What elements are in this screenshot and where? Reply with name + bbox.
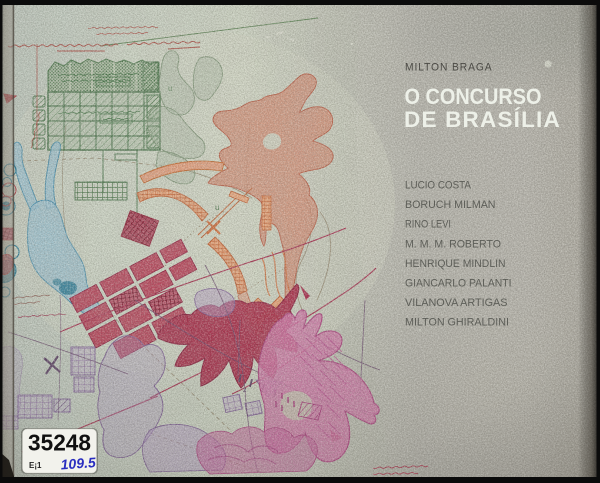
svg-text:35248: 35248 [28,430,91,456]
svg-text:E¡1: E¡1 [29,461,42,470]
svg-text:HENRIQUE MINDLIN: HENRIQUE MINDLIN [405,258,506,270]
svg-text:DE BRASÍLIA: DE BRASÍLIA [404,107,561,132]
svg-text:O CONCURSO: O CONCURSO [405,84,542,109]
svg-text:GIANCARLO PALANTI: GIANCARLO PALANTI [405,278,512,290]
svg-text:MILTON BRAGA: MILTON BRAGA [405,62,493,74]
svg-text:109.5: 109.5 [60,454,96,472]
svg-text:LUCIO COSTA: LUCIO COSTA [405,180,472,192]
svg-text:VILANOVA ARTIGAS: VILANOVA ARTIGAS [405,297,508,309]
svg-text:M. M. M. ROBERTO: M. M. M. ROBERTO [405,238,501,250]
svg-text:RINO LEVI: RINO LEVI [405,219,451,231]
svg-text:BORUCH MILMAN: BORUCH MILMAN [405,199,496,211]
svg-text:MILTON GHIRALDINI: MILTON GHIRALDINI [405,317,509,329]
